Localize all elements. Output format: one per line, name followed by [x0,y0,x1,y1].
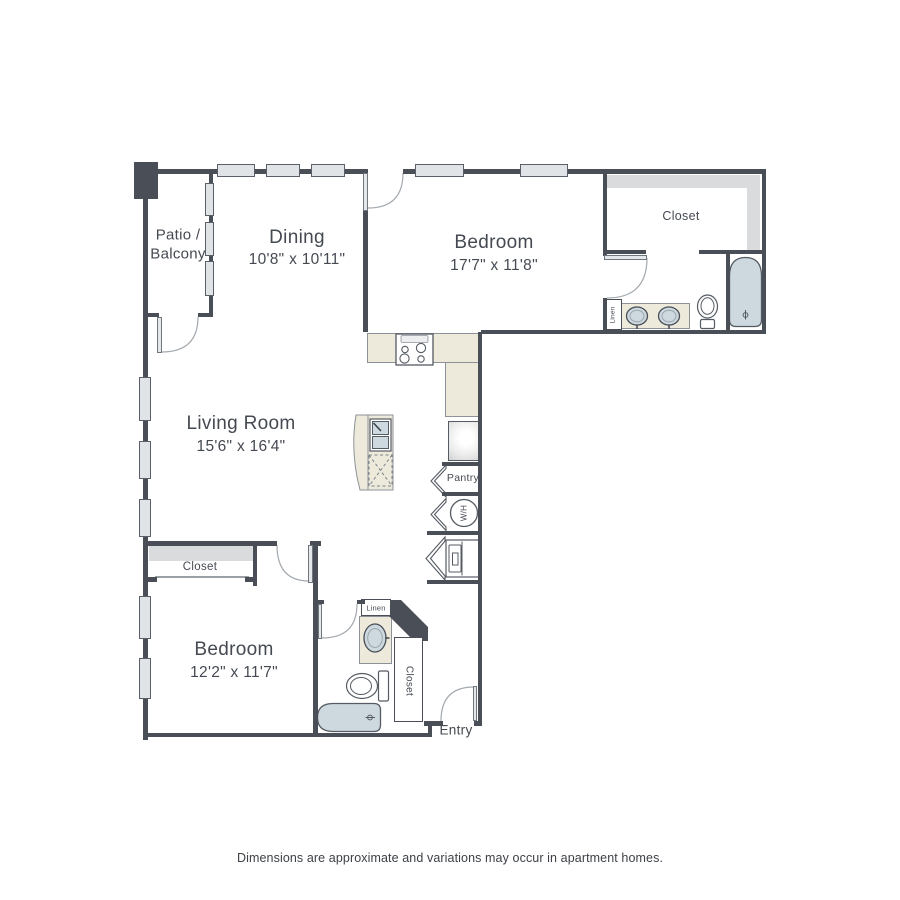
wall [427,531,478,535]
patio-glass-panel [205,261,214,296]
room-label-living: Living Room [187,413,296,435]
window [139,441,151,479]
wall [726,254,730,330]
door-arc [322,604,357,638]
kitchen-sink-icon [370,419,391,451]
wall [143,733,432,738]
floor-plan: Patio / Balcony Dining 10'8" x 10'11" Be… [0,0,900,900]
wall [198,313,213,317]
door-arc [162,317,199,352]
wall [478,332,483,725]
patio-glass-panel [205,222,214,256]
stove-icon [396,334,433,365]
room-dims-living: 15'6" x 16'4" [197,438,286,456]
bathtub-icon [318,704,381,732]
patio-label-line2: Balcony [150,245,205,264]
door-leaf [363,173,368,211]
kitchen-island [354,415,393,490]
window [520,164,568,177]
door-arc [368,173,403,208]
closet-label-lower: Closet [183,561,217,573]
wall [474,721,482,726]
closet-label-upper: Closet [662,209,699,223]
wall [245,577,257,582]
wall [427,580,478,584]
water-heater-icon [431,499,478,531]
wall [603,169,608,256]
door-leaf [604,255,647,260]
water-heater-label: W/H [460,505,469,521]
door-arc [441,687,474,721]
door-arc [607,258,647,298]
door-leaf [308,545,313,583]
angled-wall [387,600,428,641]
bath-sink-icon [627,307,680,329]
window [139,658,151,699]
room-label-bedroom-upper: Bedroom [454,232,533,254]
patio-label-line1: Patio / [150,226,205,245]
wall [442,492,478,496]
room-label-bedroom-lower: Bedroom [194,639,273,661]
wall [603,298,608,332]
bathtub-icon [730,258,762,327]
window [311,164,345,177]
entry-label: Entry [439,723,472,738]
washer-dryer-icon [426,537,481,580]
window [139,499,151,537]
wall [699,250,763,255]
door-leaf [473,686,478,721]
wall [147,577,157,582]
fixtures-layer [0,0,900,900]
wall [357,600,365,604]
wall [605,250,646,255]
wall [313,541,318,737]
door-arc [277,545,309,581]
window [266,164,300,177]
room-dims-bedroom-lower: 12'2" x 11'7" [190,664,278,682]
wall [481,330,766,335]
window [139,596,151,639]
patio-glass-panel [205,183,214,216]
room-label-dining: Dining [269,227,325,249]
disclaimer-text: Dimensions are approximate and variation… [237,851,663,865]
window [415,164,464,177]
door-leaf [157,317,162,353]
room-label-patio: Patio / Balcony [150,226,205,264]
door-leaf [318,604,323,639]
linen-label-lower: Linen [366,603,385,612]
room-dims-bedroom-upper: 17'7" x 11'8" [450,257,538,275]
room-dims-dining: 10'8" x 10'11" [249,251,346,269]
closet-label-entry: Closet [403,666,414,696]
wall [442,462,478,466]
toilet-icon [698,295,718,329]
window [139,377,151,421]
pantry-label: Pantry [447,472,479,484]
bath-sink-icon [364,624,390,652]
linen-label-upper: Linen [609,306,616,323]
toilet-icon [347,671,389,701]
window [217,164,255,177]
